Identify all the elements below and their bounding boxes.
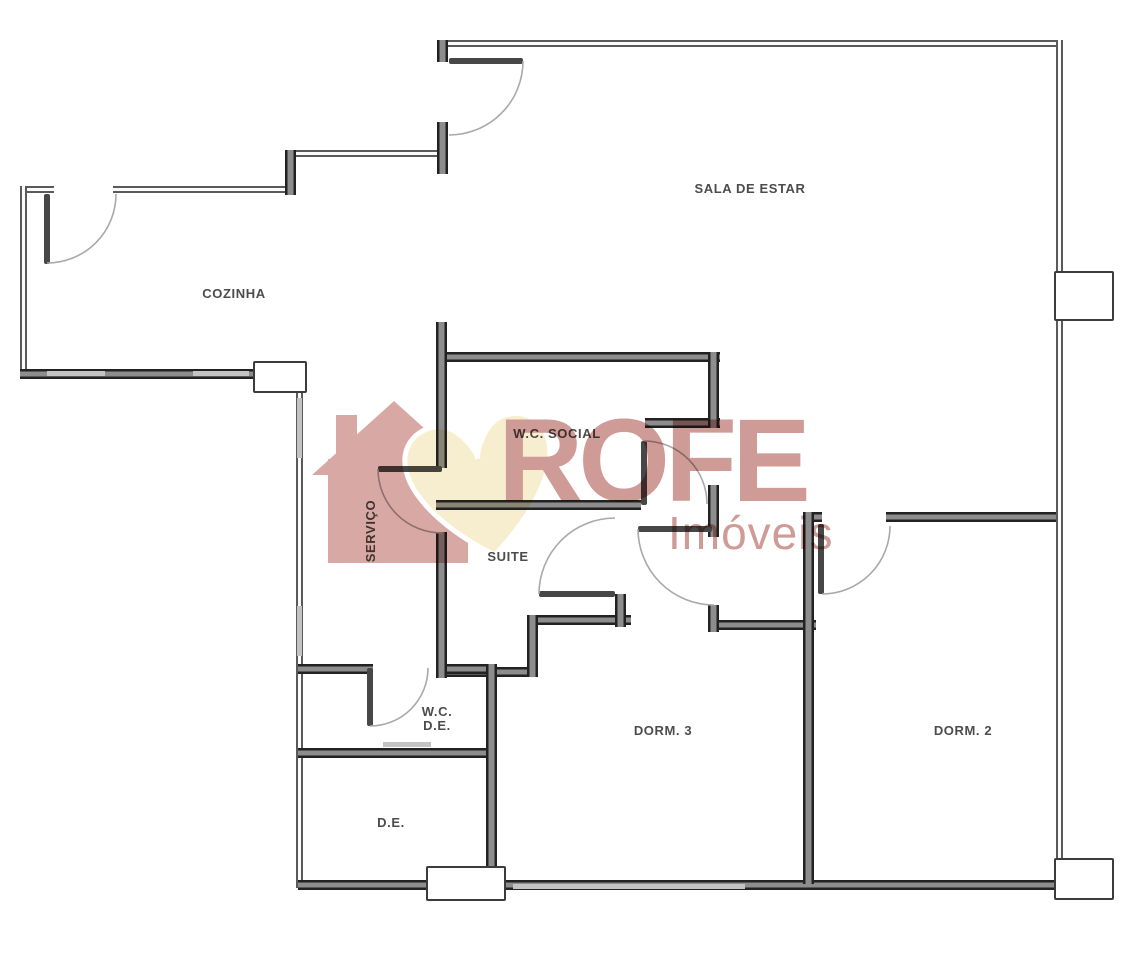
wall-segment bbox=[527, 615, 538, 677]
window-segment bbox=[383, 742, 431, 747]
wall-segment bbox=[436, 532, 447, 678]
door-leaf bbox=[539, 591, 615, 597]
window-box bbox=[1054, 271, 1114, 321]
wall-segment bbox=[285, 150, 445, 157]
window-box bbox=[253, 361, 307, 393]
room-label-suite: SUITE bbox=[487, 550, 528, 564]
window-box bbox=[1054, 858, 1114, 900]
wall-segment bbox=[486, 664, 497, 886]
window-segment bbox=[297, 606, 302, 656]
wall-segment bbox=[298, 664, 373, 674]
watermark-logo: ROFE Imóveis bbox=[0, 0, 1125, 960]
window-segment bbox=[47, 371, 105, 376]
window-segment bbox=[297, 398, 302, 458]
wall-segment bbox=[1056, 40, 1063, 891]
wall-segment bbox=[708, 352, 719, 428]
wall-segment bbox=[298, 748, 493, 758]
room-label-wc-social: W.C. SOCIAL bbox=[513, 427, 601, 441]
wall-segment bbox=[437, 122, 448, 174]
wall-segment bbox=[437, 40, 448, 62]
room-label-sala: SALA DE ESTAR bbox=[694, 182, 805, 196]
wall-segment bbox=[436, 322, 447, 468]
door-leaf bbox=[378, 466, 442, 472]
room-label-cozinha: COZINHA bbox=[202, 287, 265, 301]
room-label-wc-de: W.C. D.E. bbox=[422, 705, 453, 733]
door-leaf bbox=[641, 441, 647, 505]
window-box bbox=[426, 866, 506, 901]
door-leaf bbox=[44, 194, 50, 264]
room-label-wc-de-line1: W.C. bbox=[422, 705, 453, 719]
wall-segment bbox=[436, 500, 641, 510]
room-label-dorm3: DORM. 3 bbox=[634, 724, 692, 738]
wall-segment bbox=[886, 512, 1056, 522]
wall-segment bbox=[803, 512, 814, 884]
room-label-wc-de-line2: D.E. bbox=[422, 719, 453, 733]
wall-segment bbox=[615, 594, 626, 627]
wall-segment bbox=[708, 605, 719, 632]
floor-plan: SALA DE ESTAR COZINHA W.C. SOCIAL SERVIÇ… bbox=[0, 0, 1125, 960]
wall-segment bbox=[113, 186, 291, 193]
door-leaf bbox=[449, 58, 523, 64]
wall-segment bbox=[20, 186, 27, 378]
room-label-dorm2: DORM. 2 bbox=[934, 724, 992, 738]
door-swing-arcs bbox=[0, 0, 1125, 960]
house-icon bbox=[306, 393, 526, 568]
window-segment bbox=[513, 884, 745, 889]
heart-icon bbox=[385, 394, 580, 581]
wall-segment bbox=[710, 620, 816, 630]
wall-segment bbox=[444, 40, 1063, 47]
wall-segment bbox=[285, 150, 296, 195]
door-leaf bbox=[367, 668, 373, 726]
window-segment bbox=[193, 371, 249, 376]
room-label-servico: SERVIÇO bbox=[364, 500, 378, 562]
room-label-de: D.E. bbox=[377, 816, 405, 830]
door-leaf bbox=[818, 524, 824, 594]
door-leaf bbox=[638, 526, 712, 532]
wall-segment bbox=[447, 352, 720, 362]
